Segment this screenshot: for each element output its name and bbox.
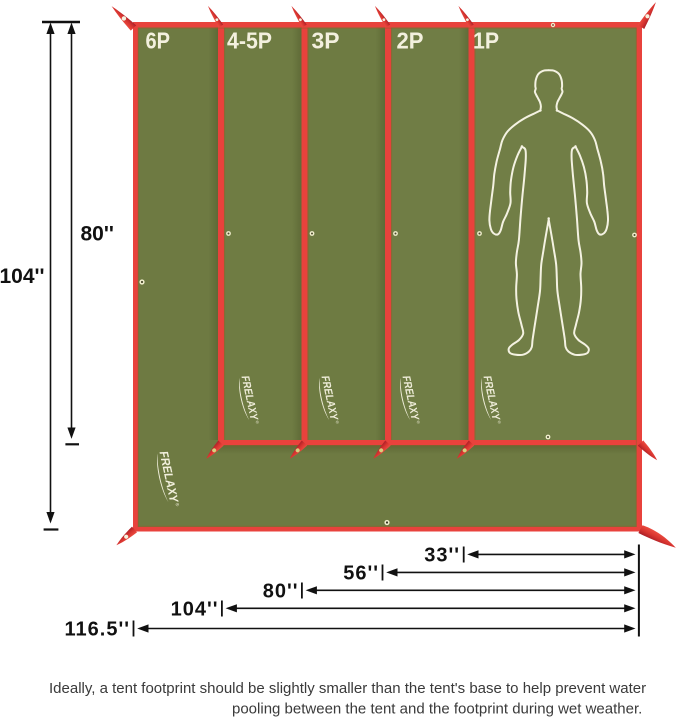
svg-text:Ideally, a tent footprint shou: Ideally, a tent footprint should be slig… [49,680,646,697]
svg-text:3P: 3P [312,28,340,54]
svg-text:6P: 6P [146,28,171,54]
svg-text:1P: 1P [473,28,499,54]
svg-text:33'': 33'' [424,545,460,567]
svg-text:104'': 104'' [171,599,219,621]
svg-text:pooling between the tent and t: pooling between the tent and the footpri… [232,701,642,718]
svg-text:80'': 80'' [263,581,299,603]
svg-text:4-5P: 4-5P [227,28,272,54]
svg-text:56'': 56'' [343,563,379,585]
svg-text:2P: 2P [397,28,424,54]
svg-text:116.5'': 116.5'' [65,619,130,641]
svg-text:80'': 80'' [81,223,114,246]
svg-text:104'': 104'' [0,265,45,288]
